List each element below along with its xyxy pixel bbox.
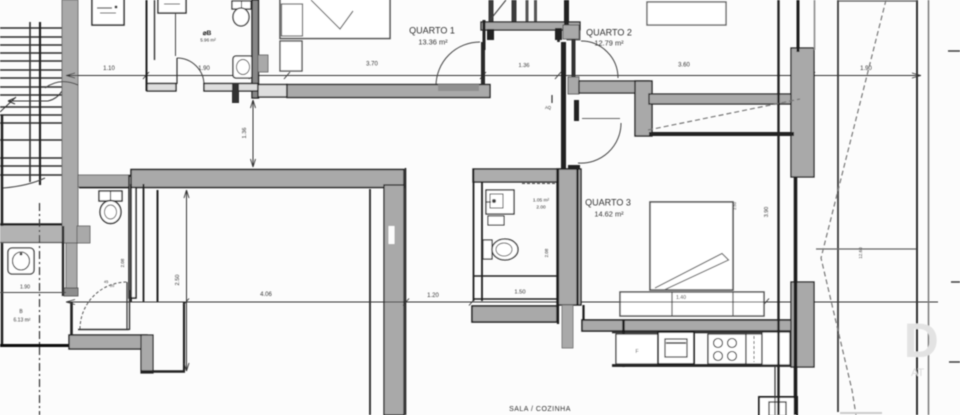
svg-text:AT: AT bbox=[911, 367, 925, 379]
svg-text:2.08: 2.08 bbox=[544, 248, 549, 257]
svg-text:12.79 m²: 12.79 m² bbox=[594, 39, 624, 48]
svg-text:1.20: 1.20 bbox=[427, 293, 439, 299]
svg-text:13.36 m²: 13.36 m² bbox=[418, 38, 448, 47]
svg-text:F: F bbox=[635, 349, 638, 355]
svg-text:1.10: 1.10 bbox=[103, 66, 115, 72]
svg-text:14.62 m²: 14.62 m² bbox=[594, 210, 624, 219]
svg-text:2.08: 2.08 bbox=[120, 258, 125, 267]
svg-text:1.36: 1.36 bbox=[242, 128, 248, 139]
svg-text:45: 45 bbox=[104, 280, 108, 284]
svg-text:QUARTO 2: QUARTO 2 bbox=[586, 28, 632, 38]
svg-text:1.90: 1.90 bbox=[860, 66, 872, 72]
svg-text:QUARTO 1: QUARTO 1 bbox=[409, 26, 455, 36]
svg-text:1.36: 1.36 bbox=[519, 63, 530, 69]
svg-text:4.06: 4.06 bbox=[260, 292, 272, 298]
svg-text:1.05 m²: 1.05 m² bbox=[533, 198, 550, 204]
svg-text:3.60: 3.60 bbox=[678, 63, 690, 69]
svg-text:AQ: AQ bbox=[545, 105, 552, 110]
svg-text:2.50: 2.50 bbox=[175, 275, 181, 286]
svg-text:5.96 m²: 5.96 m² bbox=[200, 38, 216, 43]
svg-text:3.70: 3.70 bbox=[366, 62, 378, 68]
svg-text:⌀B: ⌀B bbox=[203, 30, 212, 37]
svg-text:1.90: 1.90 bbox=[20, 285, 30, 291]
svg-text:2.50: 2.50 bbox=[732, 201, 737, 210]
svg-text:12.60: 12.60 bbox=[858, 247, 863, 259]
svg-text:D: D bbox=[904, 315, 939, 368]
svg-text:1.50: 1.50 bbox=[514, 290, 525, 296]
svg-text:6.13 m²: 6.13 m² bbox=[14, 318, 31, 324]
svg-text:1.40: 1.40 bbox=[676, 295, 686, 301]
svg-text:2.00: 2.00 bbox=[536, 205, 546, 211]
svg-text:3.90: 3.90 bbox=[764, 207, 770, 218]
svg-text:SALA / COZINHA: SALA / COZINHA bbox=[509, 406, 571, 413]
svg-text:QUARTO 3: QUARTO 3 bbox=[585, 198, 631, 208]
